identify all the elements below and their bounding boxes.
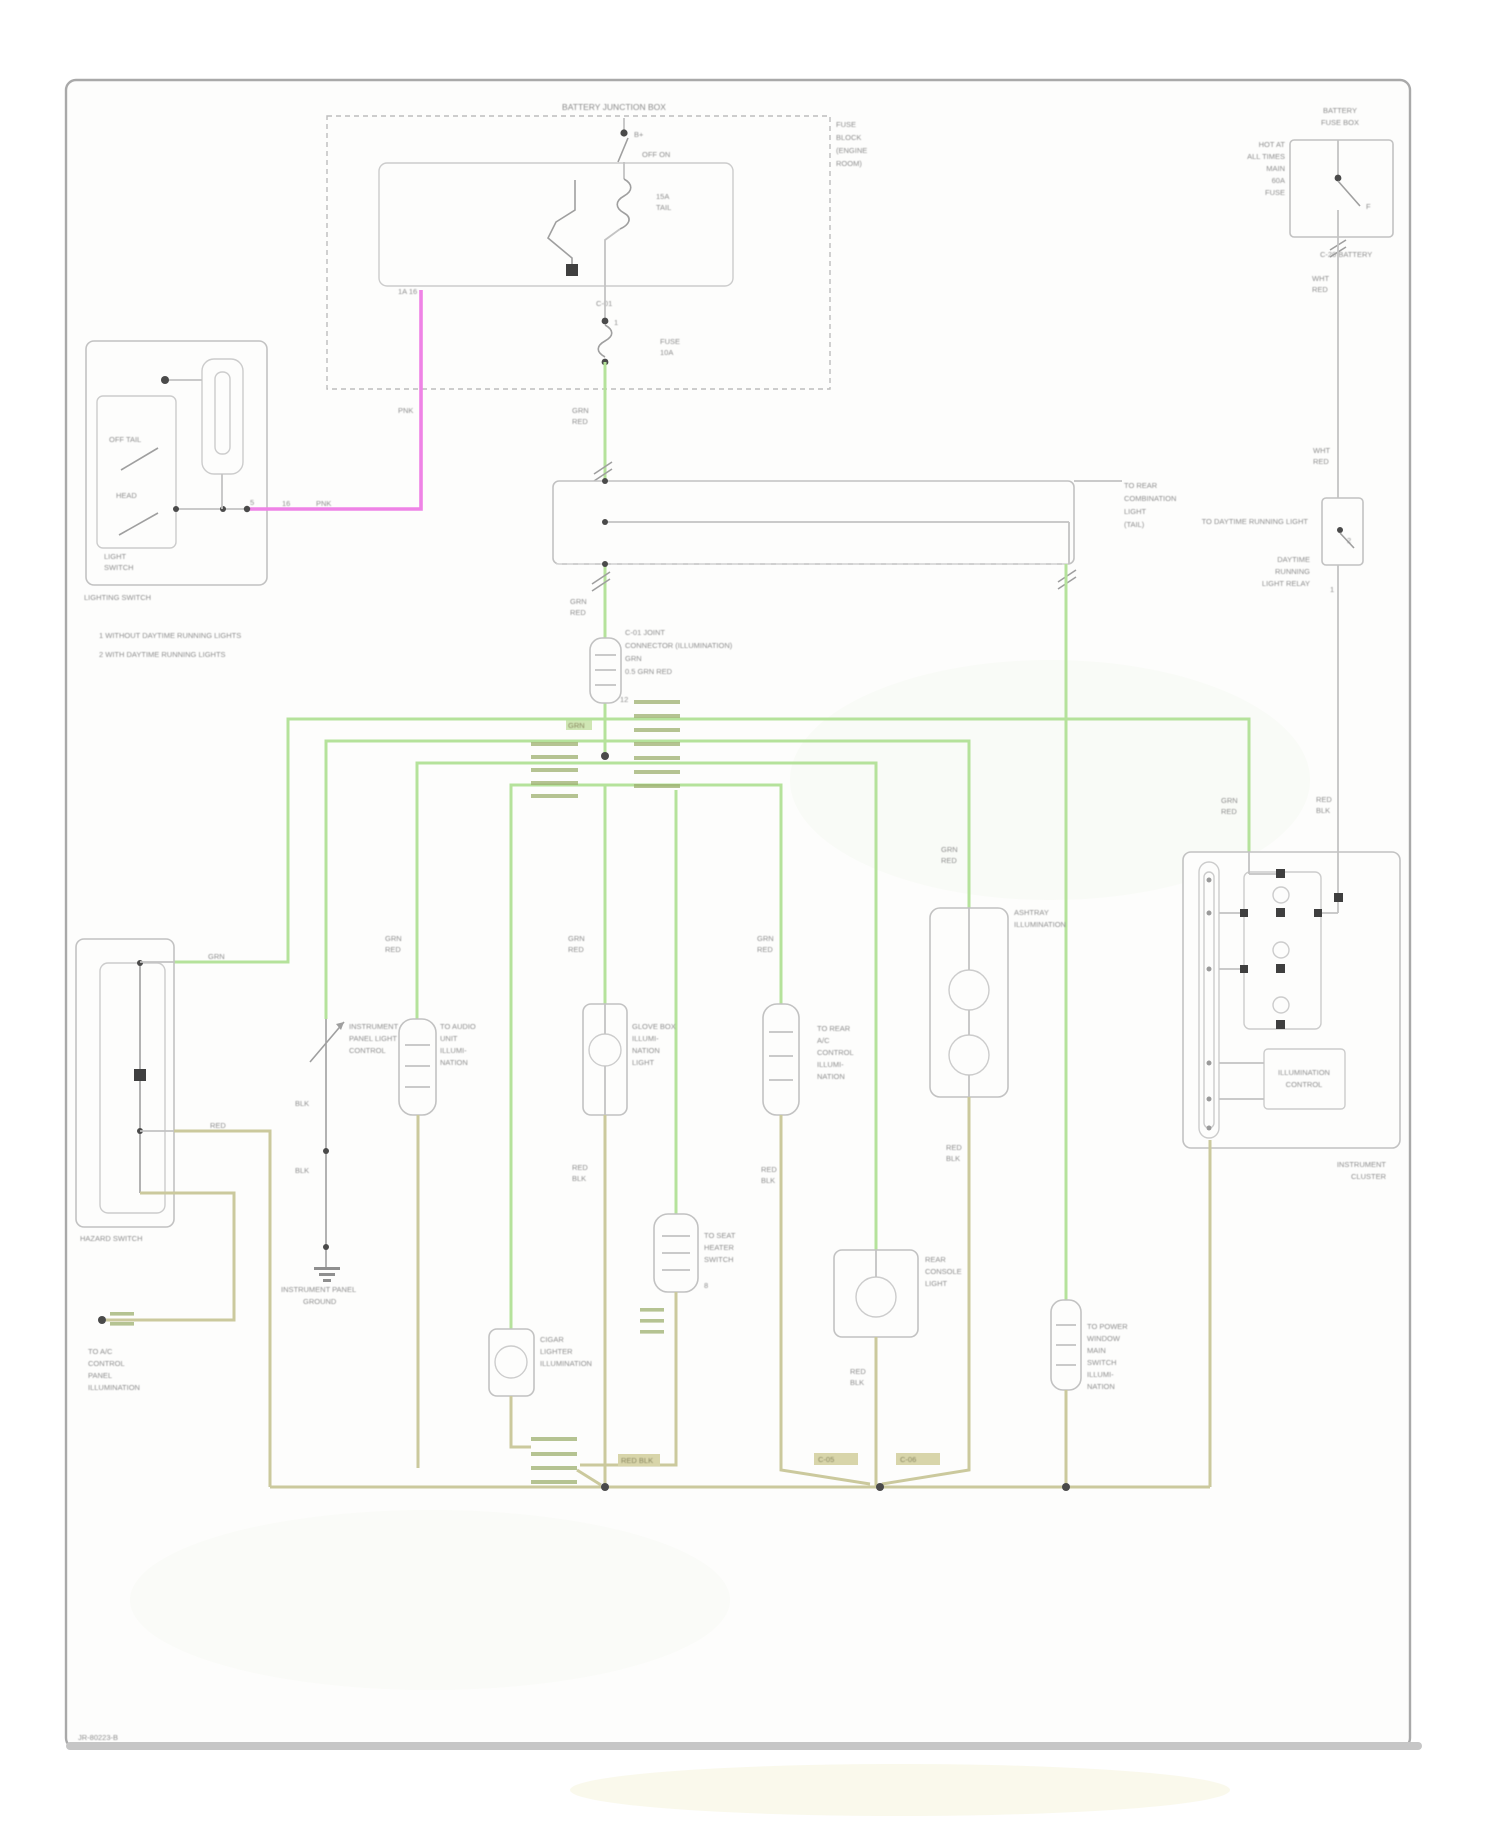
switch-position-label: HEAD [116,491,137,500]
cluster-sub-module: ILLUMINATION [1278,1068,1330,1077]
wire-color-label: RED [210,1121,226,1130]
splice-point [1062,1483,1070,1491]
wire-color-label: RED [757,945,773,954]
fuse-side-label: ROOM) [836,159,862,168]
destination-label: LIGHT [1124,507,1147,516]
wire-color-label: GRN [570,597,587,606]
switch-sublabel: SWITCH [104,563,134,572]
drl-label: TO DAYTIME RUNNING LIGHT [1202,517,1309,526]
wire-color-chip: GRN [568,721,585,730]
component-name: INSTRUMENT [1337,1160,1387,1169]
wire-color-label: RED [572,1163,588,1172]
component-label: ILLUMI- [632,1034,659,1043]
destination-label: A/C [817,1036,830,1045]
fuse-side-label: (ENGINE [836,146,867,155]
component-label: CIGAR [540,1335,564,1344]
component-name: CLUSTER [1351,1172,1387,1181]
destination-label: SWITCH [704,1255,734,1264]
splice-point [601,1483,609,1491]
drl-label: RUNNING [1275,567,1310,576]
battery-side-label: FUSE [1265,188,1285,197]
wire-color-label: RED [568,945,584,954]
lighting-switch: OFF TAIL HEAD LIGHT SWITCH LIGHTING SWIT… [84,341,267,602]
destination-label: ILLUMI- [817,1060,844,1069]
note-line: 1 WITHOUT DAYTIME RUNNING LIGHTS [99,631,241,640]
destination-label: PANEL [88,1371,112,1380]
switch-label: B+ [634,130,644,139]
wire-color-label: BLK [850,1378,864,1387]
fuse-side-label: BLOCK [836,133,861,142]
switch-label: OFF ON [642,150,670,159]
cluster-sub-module: CONTROL [1286,1080,1323,1089]
wire-color-label: WHT [1312,274,1329,283]
switch-label: F [1366,202,1371,211]
battery-side-label: HOT AT [1259,140,1286,149]
component-label: ILLUMINATION [540,1359,592,1368]
connector-label: C-20 BATTERY [1320,250,1372,259]
splice-point [876,1483,884,1491]
component-label: CONTROL [349,1046,386,1055]
component-label: PANEL LIGHT [349,1034,397,1043]
destination-label: NATION [817,1072,845,1081]
pin-number: 12 [620,695,628,704]
wire-color-label: GRN [757,934,774,943]
wire-color-label: RED [1221,807,1237,816]
wire-color-label: RED [761,1165,777,1174]
destination-label: COMBINATION [1124,494,1176,503]
wire-color-label: RED [385,945,401,954]
component-label: GLOVE BOX [632,1022,676,1031]
wire-color-label: BLK [1316,806,1330,815]
connector-label: CONNECTOR (ILLUMINATION) [625,641,733,650]
component-label: NATION [632,1046,660,1055]
destination-label: MAIN [1087,1346,1106,1355]
wire-color-label: GRN [385,934,402,943]
wire-color-label: RED [850,1367,866,1376]
wire-color-label: GRN [568,934,585,943]
wire-color-label: WHT [1313,446,1330,455]
destination-label: ILLUMINATION [88,1383,140,1392]
component-name: HAZARD SWITCH [80,1234,143,1243]
fuse-box-title: BATTERY JUNCTION BOX [562,102,666,112]
drl-label: DAYTIME [1277,555,1310,564]
page-footer: JR-80223-B [78,1733,118,1742]
component-label: ILLUMINATION [1014,920,1066,929]
connector-chip: C-05 [818,1455,834,1464]
fuse-rating: 10A [660,348,673,357]
wiring-diagram-canvas: JR-80223-B BATTERY JUNCTION BOX FUSE BLO… [0,0,1500,1828]
wire-color-label: RED [1316,795,1332,804]
pin-number: 5 [250,498,254,507]
component-label: LIGHTER [540,1347,573,1356]
destination-label: TO A/C [88,1347,113,1356]
pin-number: 8 [704,1281,708,1290]
destination-label: CONTROL [88,1359,125,1368]
wire-color-label: BLK [295,1166,309,1175]
fuse-rating: TAIL [656,203,671,212]
pin-label: 1A 16 [398,287,417,296]
switch-sublabel: LIGHT [104,552,127,561]
destination-label: TO SEAT [704,1231,736,1240]
destination-label: ILLUMI- [1087,1370,1114,1379]
battery-side-label: 60A [1272,176,1285,185]
wire-color-label: BLK [295,1099,309,1108]
destination-label: TO POWER [1087,1322,1128,1331]
fuse-rating: 15A [656,192,669,201]
wire-color-label: BLK [572,1174,586,1183]
wire-color-label: GRN [572,406,589,415]
pin-number: 1 [1330,585,1334,594]
destination-label: TO AUDIO [440,1022,476,1031]
battery-side-label: MAIN [1266,164,1285,173]
wire-color-label: GRN [1221,796,1238,805]
component-label: REAR [925,1255,946,1264]
pin-number: 1 [614,318,618,327]
destination-label: ILLUMI- [440,1046,467,1055]
drl-label: LIGHT RELAY [1262,579,1310,588]
note-line: 2 WITH DAYTIME RUNNING LIGHTS [99,650,226,659]
ground-label: INSTRUMENT PANEL [281,1285,356,1294]
wire-color-chip: RED BLK [621,1456,653,1465]
wire-color-label: BLK [946,1154,960,1163]
wire-color-label: PNK [398,406,413,415]
destination-label: TO REAR [817,1024,851,1033]
splice-point [601,752,609,760]
pin-number: 2 [1347,536,1351,545]
component-label: LIGHT [632,1058,655,1067]
connector-label: 0.5 GRN RED [625,667,673,676]
component-label: CONSOLE [925,1267,962,1276]
wire-color-label: RED [572,417,588,426]
destination-label: (TAIL) [1124,520,1145,529]
wire-color-label: RED [941,856,957,865]
wire-color-label: RED [946,1143,962,1152]
component-label: ASHTRAY [1014,908,1049,917]
component-name: LIGHTING SWITCH [84,593,151,602]
internal-terminal [566,264,578,276]
destination-label: WINDOW [1087,1334,1121,1343]
destination-label: UNIT [440,1034,458,1043]
component-label: INSTRUMENT [349,1022,399,1031]
wire-color-label: PNK [316,499,331,508]
wire-color-label: BLK [761,1176,775,1185]
connector-label: GRN [625,654,642,663]
battery-side-label: ALL TIMES [1247,152,1285,161]
fuse-side-label: FUSE [836,120,856,129]
destination-label: CONTROL [817,1048,854,1057]
ground-label: GROUND [303,1297,337,1306]
pin-number: 16 [282,499,290,508]
destination-label: SWITCH [1087,1358,1117,1367]
page-bottom-bar [66,1742,1422,1750]
destination-label: HEATER [704,1243,734,1252]
fuse-rating: FUSE [660,337,680,346]
wire-color-label: GRN [208,952,225,961]
wire-color-label: RED [1312,285,1328,294]
switch-terminal [620,129,627,136]
wire-color-label: RED [1313,457,1329,466]
switch-position-label: OFF TAIL [109,435,141,444]
destination-label: TO REAR [1124,481,1158,490]
wire-color-label: GRN [941,845,958,854]
battery-title: FUSE BOX [1321,118,1359,127]
wire-color-label: RED [570,608,586,617]
connector-chip: C-06 [900,1455,916,1464]
battery-title: BATTERY [1323,106,1357,115]
component-label: LIGHT [925,1279,948,1288]
destination-label: NATION [1087,1382,1115,1391]
connector-label: C-01 JOINT [625,628,665,637]
destination-label: NATION [440,1058,468,1067]
